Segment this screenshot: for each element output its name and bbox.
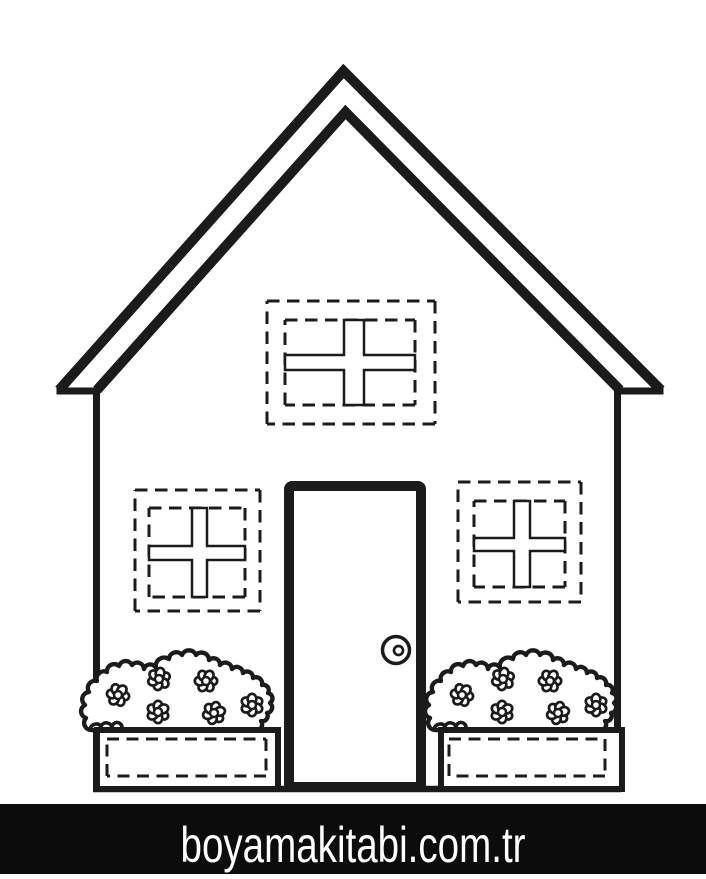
svg-text:boyamakitabi.com.tr: boyamakitabi.com.tr	[181, 817, 526, 873]
